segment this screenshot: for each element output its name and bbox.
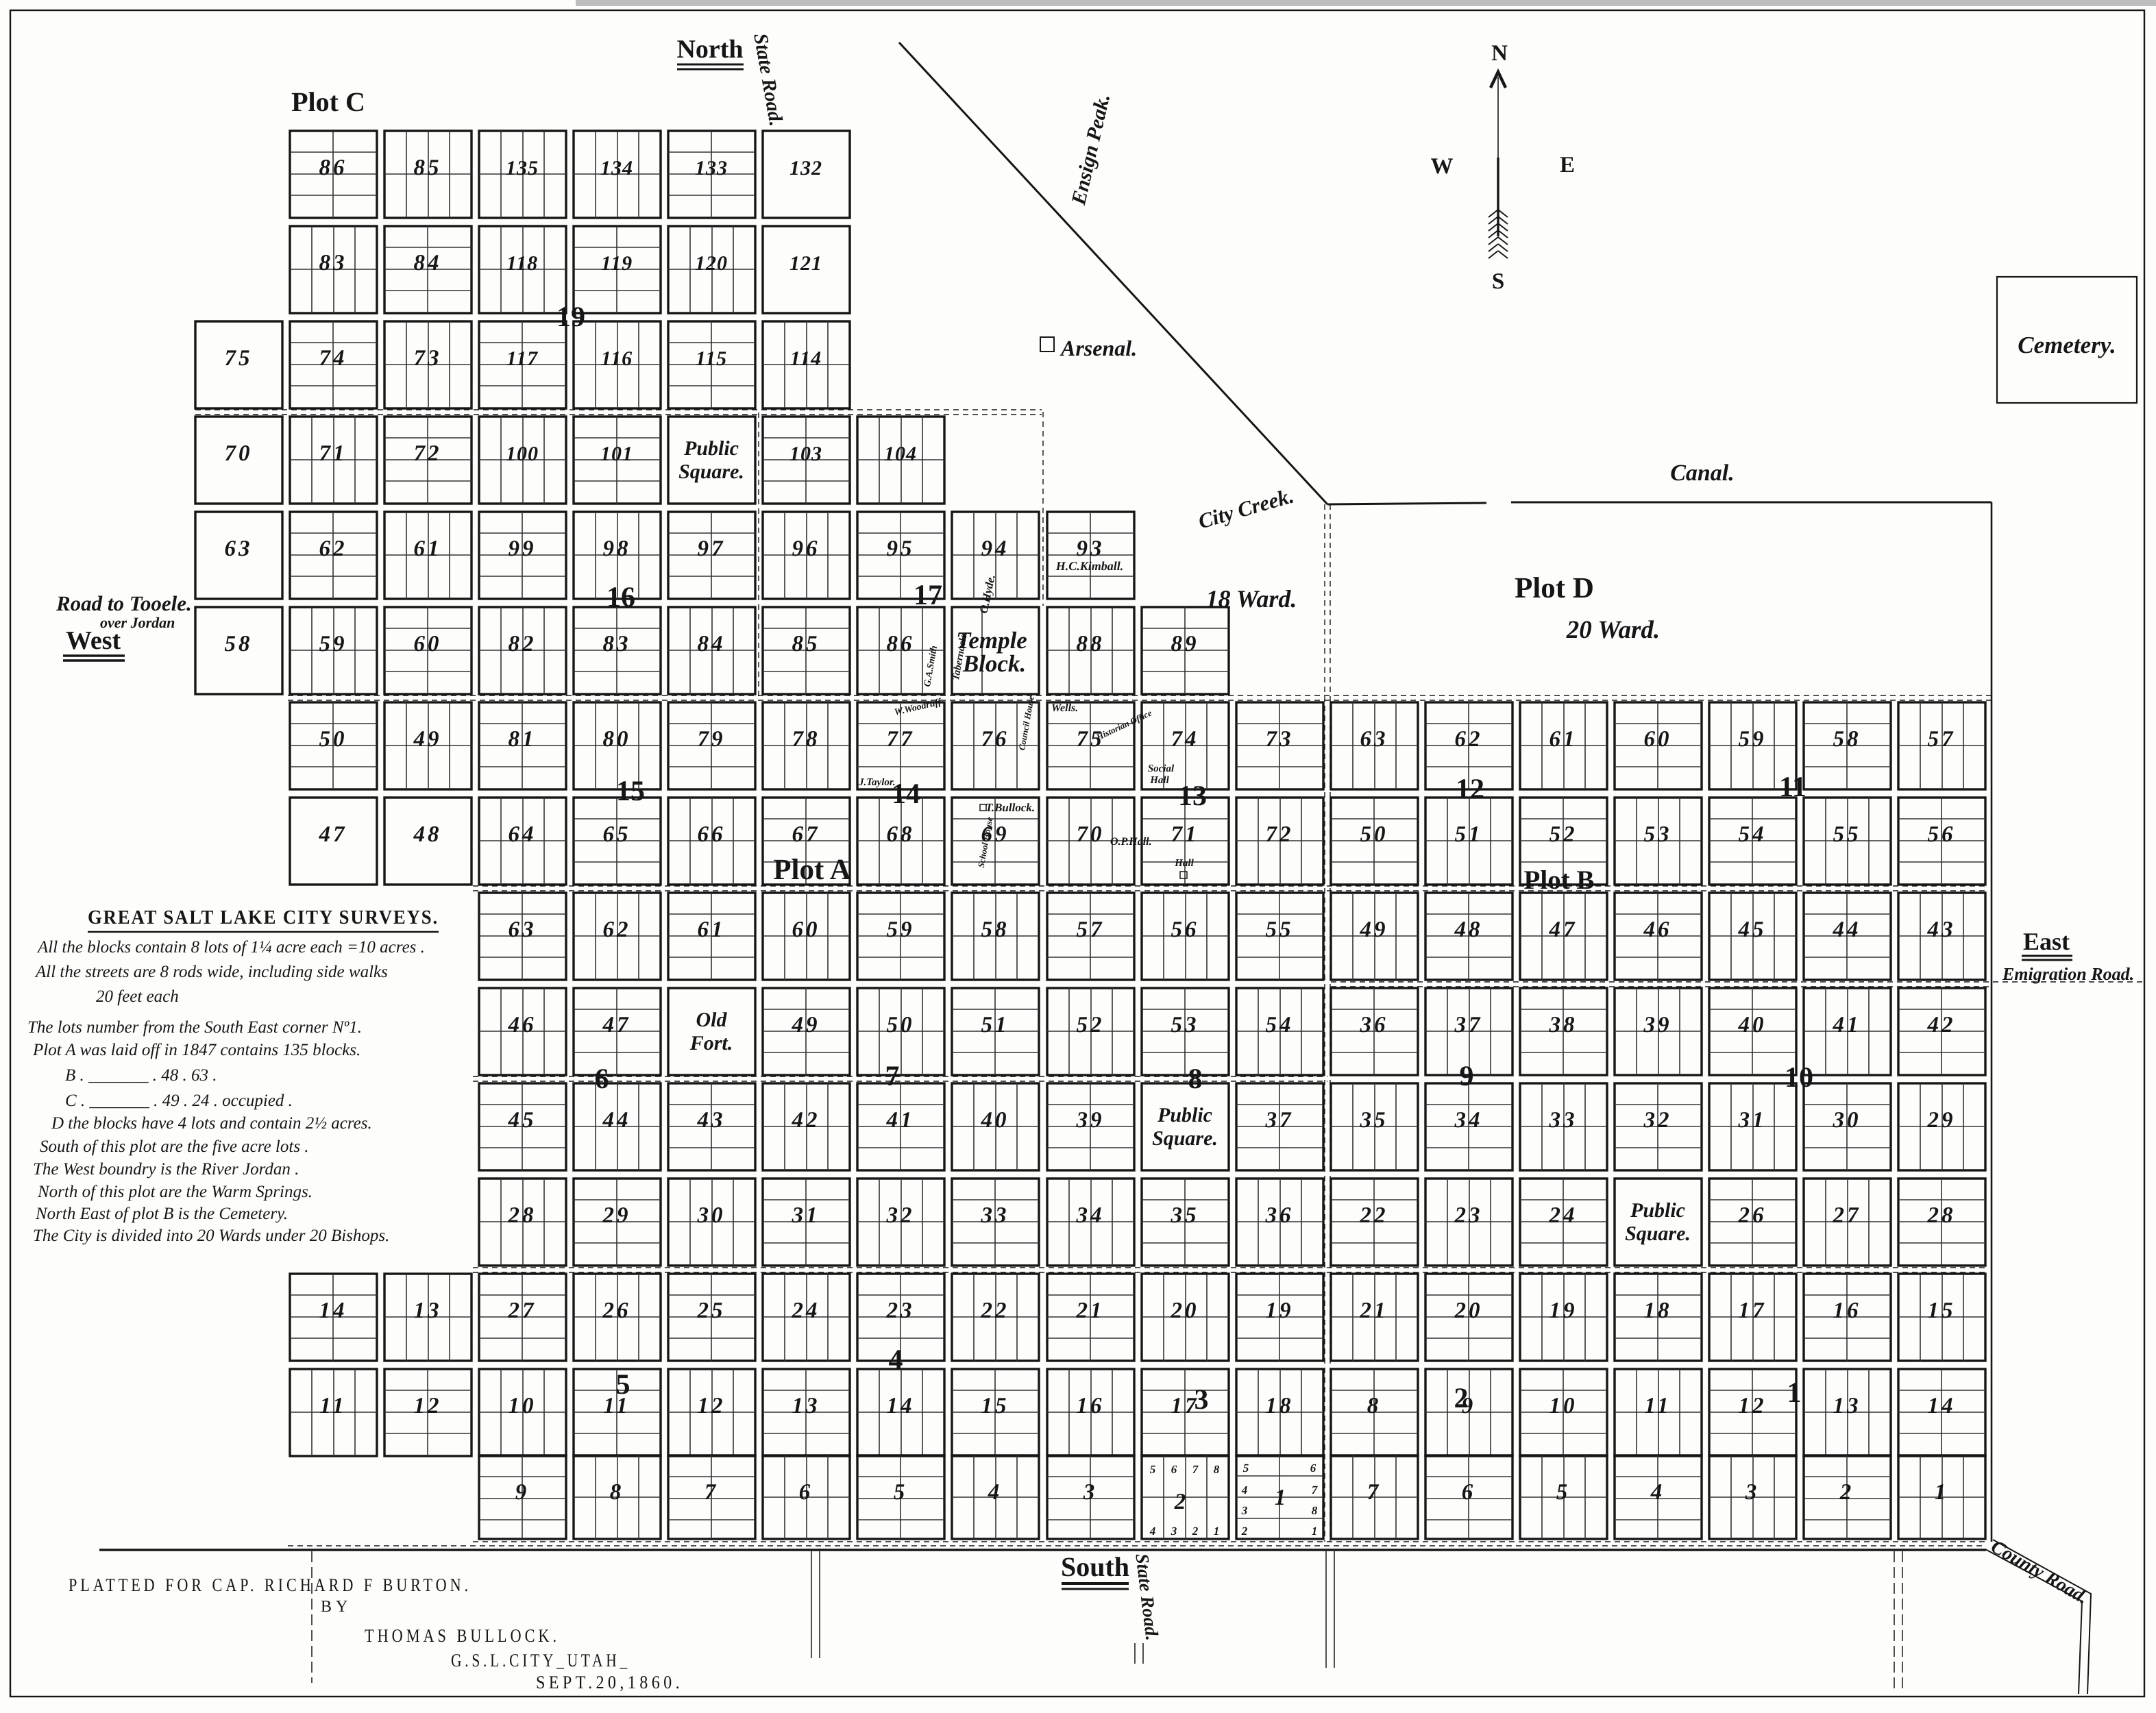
svg-text:23: 23 xyxy=(1454,1203,1483,1228)
svg-text:74: 74 xyxy=(1171,727,1199,752)
svg-text:11: 11 xyxy=(319,1394,346,1418)
svg-text:76: 76 xyxy=(981,727,1009,752)
svg-text:6: 6 xyxy=(799,1480,813,1505)
svg-text:97: 97 xyxy=(698,537,726,561)
svg-text:29: 29 xyxy=(1927,1108,1956,1133)
svg-text:61: 61 xyxy=(1549,727,1578,752)
svg-text:44: 44 xyxy=(602,1108,631,1133)
svg-text:28: 28 xyxy=(1927,1203,1956,1228)
svg-text:Social: Social xyxy=(1148,763,1175,774)
svg-text:1: 1 xyxy=(1275,1486,1289,1510)
svg-text:53: 53 xyxy=(1644,822,1672,847)
svg-text:8: 8 xyxy=(1312,1504,1318,1517)
svg-text:35: 35 xyxy=(1360,1108,1388,1133)
svg-text:61: 61 xyxy=(698,917,726,942)
svg-text:72: 72 xyxy=(414,441,442,466)
svg-text:47: 47 xyxy=(1549,917,1578,942)
svg-text:9: 9 xyxy=(515,1480,530,1505)
svg-text:10: 10 xyxy=(1785,1062,1813,1094)
svg-text:27: 27 xyxy=(1833,1203,1861,1228)
svg-text:20: 20 xyxy=(1171,1298,1199,1323)
svg-text:25: 25 xyxy=(697,1298,726,1323)
svg-text:SEPT.20,1860.: SEPT.20,1860. xyxy=(536,1672,683,1692)
svg-text:Old: Old xyxy=(696,1009,728,1031)
svg-text:O.P.Hall.: O.P.Hall. xyxy=(1110,836,1152,848)
svg-text:32: 32 xyxy=(1643,1108,1672,1133)
svg-text:12: 12 xyxy=(698,1394,726,1418)
svg-text:BY: BY xyxy=(321,1598,352,1616)
svg-text:103: 103 xyxy=(789,443,822,465)
svg-text:14: 14 xyxy=(1928,1394,1956,1418)
svg-text:60: 60 xyxy=(1644,727,1672,752)
svg-text:3: 3 xyxy=(1083,1480,1098,1505)
svg-text:52: 52 xyxy=(1549,822,1578,847)
svg-text:71: 71 xyxy=(1171,822,1199,847)
svg-text:49: 49 xyxy=(413,727,442,752)
svg-text:23: 23 xyxy=(886,1298,915,1323)
svg-text:8: 8 xyxy=(610,1480,624,1505)
svg-text:Road to Tooele.: Road to Tooele. xyxy=(56,591,192,615)
svg-text:68: 68 xyxy=(887,822,915,847)
svg-text:58: 58 xyxy=(981,917,1009,942)
svg-text:66: 66 xyxy=(698,822,726,847)
svg-text:42: 42 xyxy=(792,1108,820,1133)
svg-text:45: 45 xyxy=(1738,917,1767,942)
svg-text:8: 8 xyxy=(1214,1463,1220,1476)
svg-text:18: 18 xyxy=(1266,1394,1294,1418)
svg-text:85: 85 xyxy=(414,156,442,180)
svg-text:T.Bullock.: T.Bullock. xyxy=(985,801,1035,814)
svg-text:10: 10 xyxy=(509,1394,537,1418)
svg-text:12: 12 xyxy=(1739,1394,1767,1418)
svg-text:55: 55 xyxy=(1266,917,1294,942)
svg-text:Block.: Block. xyxy=(962,650,1026,677)
svg-text:81: 81 xyxy=(509,727,537,752)
svg-text:3: 3 xyxy=(1241,1504,1248,1517)
svg-text:83: 83 xyxy=(319,251,347,275)
svg-text:5: 5 xyxy=(1243,1462,1249,1475)
svg-text:15: 15 xyxy=(1928,1298,1956,1323)
svg-text:Plot C: Plot C xyxy=(291,86,365,117)
svg-text:24: 24 xyxy=(792,1298,820,1323)
svg-text:14: 14 xyxy=(887,1394,915,1418)
svg-text:North of this plot are the War: North of this plot are the Warm Springs. xyxy=(37,1183,313,1201)
svg-text:135: 135 xyxy=(506,157,539,180)
svg-text:58: 58 xyxy=(1833,727,1861,752)
svg-text:34: 34 xyxy=(1076,1203,1105,1228)
svg-text:24: 24 xyxy=(1549,1203,1578,1228)
svg-text:46: 46 xyxy=(1643,917,1672,942)
svg-text:Arsenal.: Arsenal. xyxy=(1059,336,1137,360)
svg-text:Fort.: Fort. xyxy=(689,1032,733,1055)
svg-text:115: 115 xyxy=(696,347,727,370)
svg-text:96: 96 xyxy=(792,537,820,561)
svg-text:51: 51 xyxy=(1455,822,1483,847)
svg-text:North: North xyxy=(676,35,743,64)
svg-text:118: 118 xyxy=(506,252,538,275)
svg-text:38: 38 xyxy=(1549,1013,1578,1037)
svg-text:71: 71 xyxy=(319,441,347,466)
svg-text:THOMAS BULLOCK.: THOMAS BULLOCK. xyxy=(365,1625,560,1646)
svg-text:4: 4 xyxy=(988,1480,1003,1505)
svg-text:78: 78 xyxy=(792,727,820,752)
svg-text:43: 43 xyxy=(1927,917,1956,942)
svg-text:84: 84 xyxy=(698,632,726,656)
svg-text:73: 73 xyxy=(414,346,442,371)
svg-text:22: 22 xyxy=(1360,1203,1388,1228)
svg-text:North East of plot B is the Ce: North East of plot B is the Cemetery. xyxy=(35,1205,288,1223)
svg-text:3: 3 xyxy=(1195,1384,1209,1416)
svg-text:88: 88 xyxy=(1077,632,1105,656)
svg-text:2: 2 xyxy=(1174,1490,1189,1514)
svg-text:59: 59 xyxy=(319,632,347,656)
svg-text:1: 1 xyxy=(1935,1480,1949,1505)
svg-text:132: 132 xyxy=(789,157,822,180)
svg-text:1: 1 xyxy=(1214,1525,1220,1538)
svg-text:20 Ward.: 20 Ward. xyxy=(1566,616,1660,644)
svg-text:15: 15 xyxy=(981,1394,1009,1418)
svg-text:4: 4 xyxy=(1241,1483,1248,1496)
svg-text:46: 46 xyxy=(508,1013,537,1037)
svg-text:49: 49 xyxy=(1360,917,1388,942)
svg-text:36: 36 xyxy=(1265,1203,1294,1228)
svg-text:75: 75 xyxy=(225,346,253,371)
svg-text:64: 64 xyxy=(509,822,537,847)
svg-text:86: 86 xyxy=(319,156,347,180)
svg-text:21: 21 xyxy=(1360,1298,1388,1323)
svg-text:2: 2 xyxy=(1839,1480,1854,1505)
svg-text:18 Ward.: 18 Ward. xyxy=(1206,585,1297,613)
svg-text:41: 41 xyxy=(886,1108,915,1133)
svg-text:11: 11 xyxy=(1779,772,1806,803)
svg-text:63: 63 xyxy=(509,917,537,942)
svg-text:Hall: Hall xyxy=(1174,858,1194,869)
svg-text:Hall: Hall xyxy=(1149,775,1169,786)
svg-text:29: 29 xyxy=(602,1203,631,1228)
svg-text:14: 14 xyxy=(892,778,920,810)
svg-text:116: 116 xyxy=(601,347,633,370)
svg-text:11: 11 xyxy=(1644,1394,1671,1418)
svg-text:12: 12 xyxy=(1456,774,1484,805)
svg-text:South: South xyxy=(1061,1551,1129,1582)
svg-text:60: 60 xyxy=(414,632,442,656)
svg-text:79: 79 xyxy=(698,727,726,752)
svg-text:4: 4 xyxy=(1650,1480,1665,1505)
svg-text:98: 98 xyxy=(603,537,631,561)
svg-text:4: 4 xyxy=(889,1344,903,1376)
svg-text:82: 82 xyxy=(509,632,537,656)
svg-text:119: 119 xyxy=(601,252,633,275)
svg-text:89: 89 xyxy=(1171,632,1199,656)
svg-text:30: 30 xyxy=(1833,1108,1861,1133)
svg-text:40: 40 xyxy=(1738,1013,1767,1037)
svg-text:34: 34 xyxy=(1454,1108,1483,1133)
svg-text:13: 13 xyxy=(1178,780,1207,812)
svg-text:50: 50 xyxy=(319,727,347,752)
svg-text:South of this plot are the fiv: South of this plot are the five acre lot… xyxy=(40,1137,309,1156)
svg-text:58: 58 xyxy=(225,632,253,656)
svg-text:All the streets are 8 rods wid: All the streets are 8 rods wide, includi… xyxy=(34,963,388,981)
svg-text:45: 45 xyxy=(508,1108,537,1133)
svg-text:31: 31 xyxy=(792,1203,820,1228)
svg-text:50: 50 xyxy=(887,1013,915,1037)
svg-text:J.Taylor.: J.Taylor. xyxy=(858,777,896,788)
svg-text:13: 13 xyxy=(414,1298,442,1323)
svg-text:8: 8 xyxy=(1367,1394,1382,1418)
svg-text:13: 13 xyxy=(792,1394,820,1418)
svg-text:G.S.L.CITY_UTAH_: G.S.L.CITY_UTAH_ xyxy=(451,1650,630,1671)
svg-text:Canal.: Canal. xyxy=(1670,460,1735,486)
svg-text:100: 100 xyxy=(506,443,539,465)
svg-text:7: 7 xyxy=(705,1480,719,1505)
svg-text:104: 104 xyxy=(884,443,917,465)
svg-text:20 feet each: 20 feet each xyxy=(96,987,179,1006)
svg-text:26: 26 xyxy=(1738,1203,1767,1228)
svg-text:52: 52 xyxy=(1077,1013,1105,1037)
svg-text:17: 17 xyxy=(914,580,942,611)
svg-text:117: 117 xyxy=(506,347,538,370)
svg-text:1: 1 xyxy=(1787,1377,1802,1409)
svg-text:59: 59 xyxy=(887,917,915,942)
svg-text:67: 67 xyxy=(792,822,820,847)
svg-text:85: 85 xyxy=(792,632,820,656)
svg-text:16: 16 xyxy=(607,582,635,613)
svg-text:62: 62 xyxy=(603,917,631,942)
svg-text:86: 86 xyxy=(887,632,915,656)
svg-text:5: 5 xyxy=(1556,1480,1571,1505)
svg-text:H.C.Kimball.: H.C.Kimball. xyxy=(1055,559,1124,573)
svg-text:The City is divided into 20 Wa: The City is divided into 20 Wards under … xyxy=(33,1227,389,1245)
svg-text:19: 19 xyxy=(1266,1298,1294,1323)
svg-text:16: 16 xyxy=(1077,1394,1105,1418)
svg-text:7: 7 xyxy=(885,1061,900,1092)
svg-text:B . _______ . 48 .: B . _______ . 48 . 63 . xyxy=(65,1066,217,1085)
svg-text:15: 15 xyxy=(616,776,645,807)
svg-text:Emigration Road.: Emigration Road. xyxy=(2002,964,2134,984)
svg-text:47: 47 xyxy=(319,822,347,847)
svg-text:2: 2 xyxy=(1454,1383,1469,1414)
svg-text:37: 37 xyxy=(1454,1013,1483,1037)
svg-text:19: 19 xyxy=(1549,1298,1578,1323)
svg-text:Plot B: Plot B xyxy=(1524,865,1595,895)
svg-text:84: 84 xyxy=(414,251,442,275)
svg-text:13: 13 xyxy=(1833,1394,1861,1418)
svg-text:33: 33 xyxy=(1549,1108,1578,1133)
svg-text:All the blocks contain 8 lots: All the blocks contain 8 lots of 1¼ acre… xyxy=(36,938,425,957)
svg-text:120: 120 xyxy=(695,252,728,275)
svg-text:39: 39 xyxy=(1643,1013,1672,1037)
svg-text:54: 54 xyxy=(1739,822,1767,847)
svg-text:133: 133 xyxy=(695,157,728,180)
svg-text:27: 27 xyxy=(508,1298,537,1323)
svg-text:9: 9 xyxy=(1460,1061,1474,1092)
svg-text:70: 70 xyxy=(225,441,253,466)
svg-text:62: 62 xyxy=(319,537,347,561)
svg-text:48: 48 xyxy=(413,822,442,847)
svg-text:41: 41 xyxy=(1833,1013,1861,1037)
svg-text:57: 57 xyxy=(1077,917,1105,942)
svg-text:94: 94 xyxy=(981,537,1009,561)
svg-text:121: 121 xyxy=(789,252,822,275)
svg-text:134: 134 xyxy=(600,157,633,180)
svg-text:Plot D: Plot D xyxy=(1515,572,1594,604)
svg-text:56: 56 xyxy=(1171,917,1199,942)
svg-text:GREAT SALT LAKE CITY SURVEYS.: GREAT SALT LAKE CITY SURVEYS. xyxy=(88,907,439,928)
svg-text:55: 55 xyxy=(1833,822,1861,847)
svg-text:S: S xyxy=(1492,269,1504,294)
svg-text:43: 43 xyxy=(697,1108,726,1133)
svg-text:D the blocks have 4 lots and c: D the blocks have 4 lots and contain 2½ … xyxy=(51,1114,372,1133)
svg-text:Square.: Square. xyxy=(1152,1127,1218,1150)
svg-text:70: 70 xyxy=(1077,822,1105,847)
svg-text:73: 73 xyxy=(1266,727,1294,752)
svg-text:Plot A was laid off in 1847 co: Plot A was laid off in 1847 contains 135… xyxy=(32,1041,360,1059)
svg-text:N: N xyxy=(1491,41,1508,66)
svg-text:33: 33 xyxy=(981,1203,1009,1228)
svg-text:C . _______ . 49 .: C . _______ . 49 . 24 . occupied . xyxy=(65,1092,293,1110)
svg-text:80: 80 xyxy=(603,727,631,752)
svg-text:6: 6 xyxy=(1310,1462,1316,1475)
svg-text:44: 44 xyxy=(1833,917,1861,942)
svg-text:10: 10 xyxy=(1549,1394,1578,1418)
svg-text:Public: Public xyxy=(683,437,739,460)
svg-text:49: 49 xyxy=(792,1013,820,1037)
svg-text:62: 62 xyxy=(1455,727,1483,752)
svg-text:72: 72 xyxy=(1266,822,1294,847)
svg-text:The West boundry is the River: The West boundry is the River Jordan . xyxy=(33,1160,299,1179)
svg-text:35: 35 xyxy=(1171,1203,1199,1228)
svg-text:1: 1 xyxy=(1312,1525,1318,1538)
svg-text:2: 2 xyxy=(1241,1525,1248,1538)
svg-text:61: 61 xyxy=(414,537,442,561)
svg-text:53: 53 xyxy=(1171,1013,1199,1037)
svg-text:Public: Public xyxy=(1630,1199,1685,1222)
svg-text:16: 16 xyxy=(1833,1298,1861,1323)
svg-text:Wells.: Wells. xyxy=(1051,702,1078,714)
svg-text:3: 3 xyxy=(1745,1480,1760,1505)
svg-text:20: 20 xyxy=(1454,1298,1483,1323)
svg-text:37: 37 xyxy=(1265,1108,1294,1133)
svg-text:6: 6 xyxy=(1171,1463,1177,1476)
svg-text:5: 5 xyxy=(616,1369,630,1401)
svg-text:30: 30 xyxy=(697,1203,726,1228)
svg-text:83: 83 xyxy=(603,632,631,656)
svg-text:31: 31 xyxy=(1738,1108,1767,1133)
svg-text:50: 50 xyxy=(1360,822,1388,847)
svg-text:East: East xyxy=(2023,928,2070,955)
svg-text:18: 18 xyxy=(1644,1298,1672,1323)
svg-text:6: 6 xyxy=(1462,1480,1476,1505)
svg-text:54: 54 xyxy=(1266,1013,1294,1037)
svg-text:Public: Public xyxy=(1157,1104,1212,1126)
svg-text:65: 65 xyxy=(603,822,631,847)
svg-text:8: 8 xyxy=(1188,1063,1203,1095)
svg-text:114: 114 xyxy=(790,347,822,370)
svg-text:51: 51 xyxy=(981,1013,1009,1037)
svg-text:28: 28 xyxy=(508,1203,537,1228)
svg-text:63: 63 xyxy=(1360,727,1388,752)
svg-text:93: 93 xyxy=(1077,537,1105,561)
svg-text:26: 26 xyxy=(602,1298,631,1323)
svg-text:42: 42 xyxy=(1927,1013,1956,1037)
svg-text:2: 2 xyxy=(1192,1525,1199,1538)
svg-text:W: W xyxy=(1431,154,1454,179)
svg-text:Square.: Square. xyxy=(678,460,744,483)
svg-text:101: 101 xyxy=(600,443,633,465)
svg-text:21: 21 xyxy=(1076,1298,1105,1323)
svg-text:40: 40 xyxy=(981,1108,1009,1133)
svg-text:Plot A: Plot A xyxy=(773,854,850,886)
svg-text:39: 39 xyxy=(1076,1108,1105,1133)
svg-text:Square.: Square. xyxy=(1625,1222,1691,1245)
svg-text:19: 19 xyxy=(556,301,585,333)
svg-text:4: 4 xyxy=(1149,1525,1156,1538)
svg-text:48: 48 xyxy=(1454,917,1483,942)
svg-text:60: 60 xyxy=(792,917,820,942)
svg-text:West: West xyxy=(66,626,121,655)
svg-text:12: 12 xyxy=(414,1394,442,1418)
svg-text:22: 22 xyxy=(981,1298,1009,1323)
svg-text:36: 36 xyxy=(1360,1013,1388,1037)
svg-text:Cemetery.: Cemetery. xyxy=(2018,332,2116,358)
svg-text:14: 14 xyxy=(319,1298,347,1323)
svg-text:5: 5 xyxy=(1150,1463,1156,1476)
svg-text:PLATTED FOR CAP. RICHARD F BUR: PLATTED FOR CAP. RICHARD F BURTON. xyxy=(69,1575,471,1595)
svg-text:17: 17 xyxy=(1739,1298,1767,1323)
svg-text:56: 56 xyxy=(1928,822,1956,847)
svg-text:63: 63 xyxy=(225,537,253,561)
svg-text:7: 7 xyxy=(1367,1480,1382,1505)
svg-text:95: 95 xyxy=(887,537,915,561)
svg-text:6: 6 xyxy=(595,1063,609,1095)
svg-text:74: 74 xyxy=(319,346,347,371)
svg-text:77: 77 xyxy=(887,727,915,752)
svg-text:3: 3 xyxy=(1171,1525,1177,1538)
svg-text:E: E xyxy=(1560,153,1575,177)
svg-text:5: 5 xyxy=(894,1480,908,1505)
svg-text:59: 59 xyxy=(1739,727,1767,752)
svg-text:57: 57 xyxy=(1928,727,1956,752)
svg-text:The lots number from the South: The lots number from the South East corn… xyxy=(27,1018,362,1037)
svg-text:99: 99 xyxy=(509,537,537,561)
svg-text:32: 32 xyxy=(886,1203,915,1228)
svg-text:47: 47 xyxy=(602,1013,631,1037)
